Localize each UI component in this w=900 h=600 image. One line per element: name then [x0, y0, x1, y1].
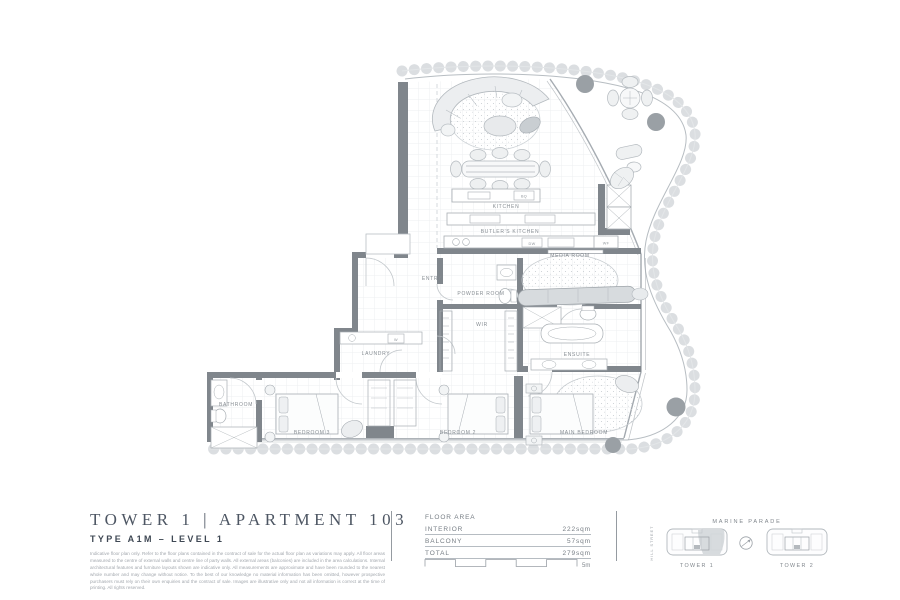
outdoor-lounge — [606, 143, 643, 193]
divider-line-left — [391, 511, 392, 561]
room-label-powder: POWDER ROOM — [457, 291, 504, 297]
disclaimer-text: Indicative floor plan only. Refer to the… — [90, 551, 385, 592]
floor-area-value: 279sqm — [562, 550, 591, 557]
apartment-type-subtitle: TYPE A1M – LEVEL 1 — [90, 534, 385, 544]
appliance-label-washer: W — [394, 338, 398, 342]
room-label-bedroom3: BEDROOM 3 — [294, 430, 330, 436]
floor-area-row-total: TOTAL 279sqm — [425, 547, 591, 559]
scale-bar-label: 5m — [582, 563, 590, 569]
street-label-marine-parade: MARINE PARADE — [712, 519, 781, 525]
tower-1-outline — [667, 529, 727, 555]
appliance-label-dishwasher: DW — [529, 242, 536, 246]
appliance-label-bbq: BQ — [521, 195, 527, 199]
title-block: TOWER 1 | APARTMENT 103 TYPE A1M – LEVEL… — [90, 510, 385, 592]
room-label-laundry: LAUNDRY — [362, 351, 391, 357]
floor-area-value: 57sqm — [567, 538, 591, 545]
divider-line-right — [616, 511, 617, 561]
appliance-label-wine-fridge: WF — [603, 242, 610, 246]
floor-area-row-balcony: BALCONY 57sqm — [425, 535, 591, 547]
room-label-entry: ENTRY — [422, 276, 442, 282]
floor-area-table: FLOOR AREA INTERIOR 222sqm BALCONY 57sqm… — [425, 512, 591, 559]
room-label-butlers: BUTLER'S KITCHEN — [481, 229, 540, 235]
floor-area-value: 222sqm — [562, 526, 591, 533]
room-label-media: MEDIA ROOM — [550, 253, 590, 259]
room-label-main-bedroom: MAIN BEDROOM — [560, 430, 608, 436]
tower-2-outline — [767, 529, 827, 555]
page-title: TOWER 1 | APARTMENT 103 — [90, 510, 385, 530]
floor-area-label: BALCONY — [425, 538, 462, 545]
tower-2-label: TOWER 2 — [780, 563, 814, 569]
compass-icon — [740, 537, 752, 549]
room-label-bedroom2: BEDROOM 2 — [440, 430, 476, 436]
entry-porch — [366, 234, 410, 254]
floor-area-row-interior: INTERIOR 222sqm — [425, 524, 591, 536]
room-label-kitchen: KITCHEN — [493, 204, 520, 210]
room-label-bathroom: BATHROOM — [219, 402, 253, 408]
laundry — [340, 332, 422, 344]
room-label-ensuite: ENSUITE — [564, 352, 591, 358]
floor-area-label: TOTAL — [425, 550, 450, 557]
scale-bar: 5m — [425, 560, 590, 570]
floor-area-label: INTERIOR — [425, 526, 463, 533]
floor-area-heading: FLOOR AREA — [425, 512, 591, 524]
site-locator: MARINE PARADE HILL STREET — [650, 519, 827, 569]
room-label-wir: WIR — [476, 322, 488, 328]
tower-1-label: TOWER 1 — [680, 563, 714, 569]
street-label-hill-street: HILL STREET — [650, 526, 654, 561]
floorplan-sheet: { "title_block": { "title": "TOWER 1 | A… — [0, 0, 900, 600]
